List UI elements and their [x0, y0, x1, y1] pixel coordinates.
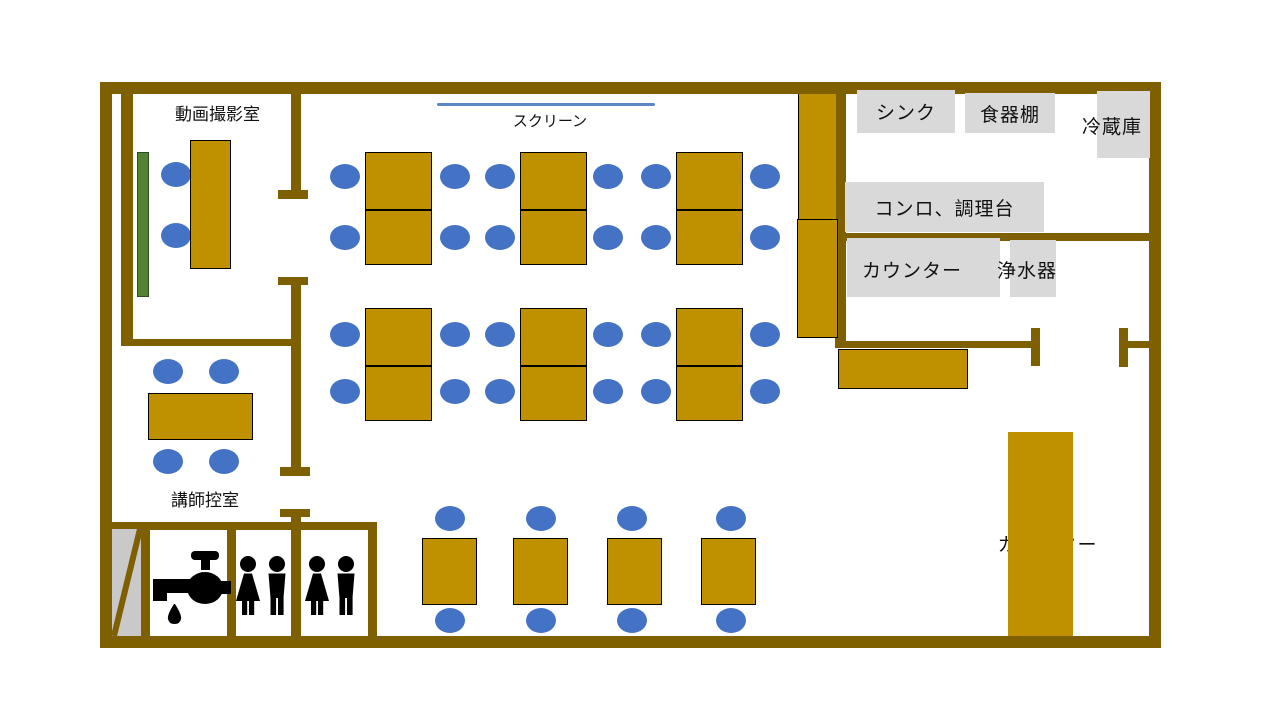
table-divider — [676, 209, 743, 211]
table-divider — [365, 365, 432, 367]
seminar-table-pair — [365, 152, 432, 265]
chair — [440, 225, 470, 250]
seminar-table-pair — [676, 308, 743, 421]
chair — [440, 164, 470, 189]
single-table — [701, 538, 756, 605]
video-room-table — [190, 140, 231, 269]
green-board — [137, 152, 149, 297]
chair — [485, 379, 515, 404]
chair — [641, 322, 671, 347]
chair — [161, 223, 191, 248]
single-table — [607, 538, 662, 605]
seminar-table-pair — [520, 308, 587, 421]
chair — [750, 379, 780, 404]
chair — [593, 225, 623, 250]
screen-line — [437, 103, 655, 106]
chair — [641, 164, 671, 189]
chair — [435, 608, 465, 633]
female-icon — [305, 556, 329, 615]
chair — [485, 225, 515, 250]
single-table — [513, 538, 568, 605]
table-divider — [676, 365, 743, 367]
chair — [617, 506, 647, 531]
chair — [593, 379, 623, 404]
chair — [526, 608, 556, 633]
chair — [593, 322, 623, 347]
chair — [750, 225, 780, 250]
chair — [593, 164, 623, 189]
seminar-table-pair — [365, 308, 432, 421]
chair — [330, 164, 360, 189]
faucet-icon — [147, 551, 231, 625]
restroom-icons-2 — [302, 555, 362, 621]
female-icon — [236, 556, 260, 615]
chair — [641, 225, 671, 250]
table-divider — [520, 209, 587, 211]
pillar-counter-lower — [797, 219, 838, 338]
chair — [617, 608, 647, 633]
chair — [485, 322, 515, 347]
instructor-room-table — [148, 393, 253, 440]
single-table — [422, 538, 477, 605]
male-icon — [269, 556, 286, 615]
lounge-counter — [1008, 432, 1073, 636]
chair — [526, 506, 556, 531]
chair — [716, 506, 746, 531]
chair — [161, 162, 191, 187]
table-divider — [365, 209, 432, 211]
floor-plan: シンク 食器棚 冷蔵庫 コンロ、調理台 カウンター 浄水器 動画撮影室 スクリー… — [0, 0, 1280, 720]
seminar-table-pair — [676, 152, 743, 265]
seminar-table-pair — [520, 152, 587, 265]
kitchen-side-counter — [838, 349, 968, 389]
chair — [440, 379, 470, 404]
chair — [330, 225, 360, 250]
chair — [485, 164, 515, 189]
chair — [153, 449, 183, 474]
chair — [716, 608, 746, 633]
chair — [440, 322, 470, 347]
chair — [750, 164, 780, 189]
table-divider — [520, 365, 587, 367]
chair — [209, 449, 239, 474]
chair — [750, 322, 780, 347]
chair — [330, 322, 360, 347]
pillar-counter-upper — [798, 94, 836, 219]
chair — [641, 379, 671, 404]
chair — [153, 359, 183, 384]
chair — [209, 359, 239, 384]
chair — [330, 379, 360, 404]
chair — [435, 506, 465, 531]
restroom-icons-1 — [233, 555, 293, 621]
male-icon — [338, 556, 355, 615]
